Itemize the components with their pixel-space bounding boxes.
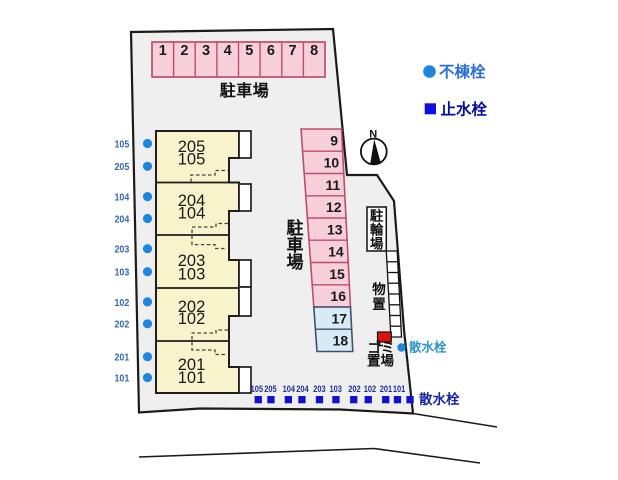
svg-text:201: 201 — [380, 384, 393, 395]
svg-text:7: 7 — [289, 43, 297, 59]
svg-text:駐: 駐 — [287, 218, 304, 238]
svg-text:205: 205 — [264, 384, 277, 395]
svg-text:2: 2 — [180, 43, 188, 59]
svg-text:203: 203 — [115, 244, 130, 256]
svg-text:101: 101 — [178, 369, 206, 387]
svg-text:102: 102 — [364, 384, 376, 395]
svg-text:6: 6 — [267, 43, 275, 59]
svg-text:不棟栓: 不棟栓 — [439, 62, 486, 81]
svg-text:置場: 置場 — [367, 353, 394, 369]
svg-text:5: 5 — [245, 43, 253, 59]
svg-text:16: 16 — [330, 288, 346, 304]
svg-text:場: 場 — [370, 235, 384, 251]
svg-text:12: 12 — [326, 199, 342, 215]
svg-text:N: N — [369, 128, 377, 140]
svg-text:202: 202 — [115, 319, 130, 331]
svg-text:17: 17 — [332, 310, 348, 326]
svg-text:105: 105 — [115, 138, 130, 150]
svg-text:1: 1 — [159, 43, 167, 59]
svg-text:11: 11 — [325, 177, 340, 193]
svg-text:205: 205 — [115, 161, 130, 173]
svg-text:車: 車 — [287, 235, 304, 255]
svg-text:置: 置 — [372, 297, 386, 312]
svg-text:止水栓: 止水栓 — [441, 99, 488, 118]
svg-text:10: 10 — [324, 155, 340, 171]
svg-text:輪: 輪 — [370, 221, 384, 237]
svg-text:103: 103 — [115, 267, 130, 279]
svg-text:105: 105 — [178, 151, 206, 169]
svg-text:駐: 駐 — [370, 207, 384, 223]
svg-text:9: 9 — [330, 132, 338, 148]
svg-text:15: 15 — [329, 266, 345, 282]
svg-text:場: 場 — [287, 253, 304, 272]
svg-text:104: 104 — [283, 384, 296, 395]
svg-text:18: 18 — [333, 333, 349, 349]
svg-text:散水栓: 散水栓 — [419, 391, 460, 407]
svg-text:104: 104 — [178, 204, 206, 222]
svg-text:102: 102 — [115, 297, 130, 309]
svg-text:204: 204 — [296, 384, 309, 395]
svg-text:101: 101 — [115, 373, 130, 385]
svg-text:104: 104 — [115, 192, 130, 204]
svg-text:102: 102 — [178, 310, 206, 328]
svg-text:103: 103 — [178, 266, 206, 284]
svg-text:散水栓: 散水栓 — [409, 340, 447, 355]
svg-text:8: 8 — [310, 43, 318, 59]
svg-text:202: 202 — [348, 384, 360, 395]
svg-text:物: 物 — [372, 281, 386, 297]
svg-text:駐車場: 駐車場 — [220, 81, 270, 100]
svg-text:201: 201 — [115, 352, 130, 364]
svg-text:4: 4 — [224, 43, 232, 59]
svg-text:13: 13 — [327, 221, 343, 237]
svg-text:101: 101 — [393, 384, 406, 395]
svg-text:204: 204 — [115, 213, 130, 225]
svg-text:14: 14 — [328, 244, 344, 260]
svg-text:203: 203 — [313, 384, 325, 395]
svg-text:3: 3 — [202, 43, 210, 59]
svg-text:103: 103 — [330, 384, 342, 395]
svg-text:105: 105 — [251, 384, 264, 395]
